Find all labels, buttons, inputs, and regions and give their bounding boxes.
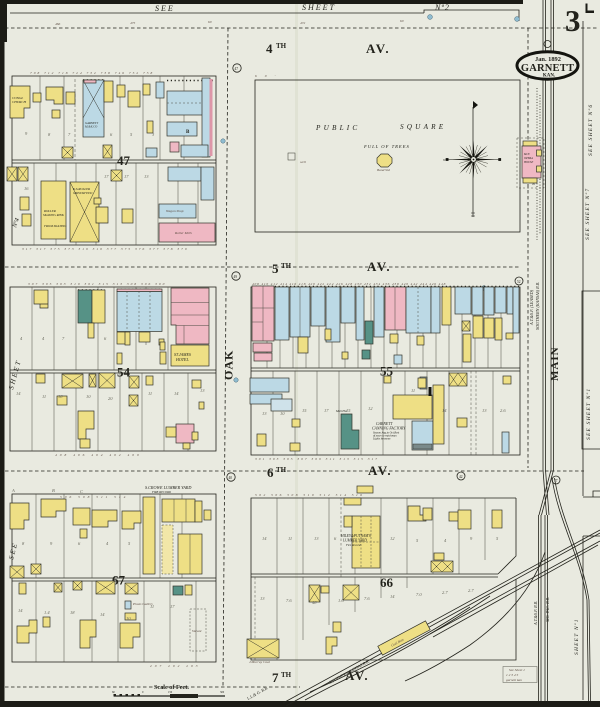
- svg-text:17: 17: [170, 604, 175, 609]
- svg-text:CHURCH: CHURCH: [12, 100, 26, 104]
- svg-text:Fire Record: Fire Record: [345, 543, 361, 547]
- svg-text:11: 11: [150, 604, 154, 609]
- svg-text:A.T.&S.F. R.R.: A.T.&S.F. R.R.: [533, 601, 538, 626]
- svg-text:18: 18: [70, 610, 75, 615]
- svg-text:KAN.: KAN.: [543, 74, 556, 79]
- svg-text:OAK: OAK: [222, 350, 236, 380]
- svg-text:Scale of Feet.: Scale of Feet.: [154, 684, 189, 691]
- svg-text:408 406 404 402 40: 408 406 404 402 400: [55, 453, 142, 457]
- svg-text:47: 47: [117, 153, 131, 168]
- svg-text:502 506 508 510 512: 502 506 508 510 512 514 516: [255, 493, 365, 497]
- svg-text:150: 150: [168, 691, 173, 694]
- svg-text:Nº2: Nº2: [434, 3, 450, 12]
- svg-text:54: 54: [117, 365, 131, 380]
- svg-text:317 317 375 373 319 310: 317 317 375 373 319 310 377 375 376 377 …: [22, 247, 189, 251]
- svg-text:472: 472: [300, 21, 306, 25]
- svg-text:W: W: [443, 158, 446, 162]
- svg-text:Lights kerosene: Lights kerosene: [372, 438, 391, 441]
- svg-text:GARNETT: GARNETT: [521, 63, 574, 74]
- svg-text:11: 11: [288, 536, 292, 541]
- svg-text:2.6: 2.6: [500, 408, 506, 413]
- svg-text:13: 13: [262, 411, 267, 416]
- svg-text:CANNING FACTORY: CANNING FACTORY: [372, 427, 406, 431]
- svg-text:HOTEL: HOTEL: [175, 357, 189, 362]
- svg-text:301 303 305 307 309 311: 301 303 305 307 309 311 313 315 317: [255, 457, 379, 461]
- svg-text:1.4: 1.4: [44, 610, 50, 615]
- svg-text:42: 42: [459, 475, 463, 479]
- svg-text:10: 10: [86, 394, 91, 399]
- svg-text:1 2 3 4 5: 1 2 3 4 5: [506, 673, 519, 677]
- svg-text:GRIST&FEED: GRIST&FEED: [73, 191, 93, 195]
- svg-text:E: E: [499, 158, 501, 162]
- svg-text:6: 6: [267, 465, 276, 480]
- svg-text:7: 7: [272, 670, 281, 685]
- svg-text:40: 40: [229, 476, 233, 480]
- svg-text:PUBLIC: PUBLIC: [315, 124, 360, 132]
- svg-text:506 508 511 514: 506 508 511 514: [60, 495, 128, 499]
- svg-text:475: 475: [130, 21, 136, 25]
- svg-text:SHEET: SHEET: [302, 3, 336, 12]
- svg-text:SEE: SEE: [155, 4, 175, 13]
- svg-text:13: 13: [260, 596, 265, 601]
- svg-text:18: 18: [58, 394, 63, 399]
- svg-text:SKATING RINK: SKATING RINK: [43, 213, 65, 217]
- svg-text:Wagon Shop: Wagon Shop: [166, 209, 184, 213]
- svg-text:14: 14: [174, 391, 179, 396]
- svg-text:12: 12: [368, 406, 373, 411]
- svg-text:MO. PAC. R.R.: MO. PAC. R.R.: [545, 597, 550, 623]
- svg-text:14: 14: [18, 608, 23, 613]
- svg-text:4: 4: [266, 41, 275, 56]
- svg-text:TH: TH: [276, 466, 287, 474]
- svg-text:SHEET Nº1: SHEET Nº1: [574, 618, 580, 655]
- svg-text:FULL OF TREES: FULL OF TREES: [363, 144, 410, 149]
- svg-text:1.6: 1.6: [338, 598, 344, 603]
- svg-text:17: 17: [104, 174, 109, 179]
- svg-text:A.T.&S.F. (LEASED): A.T.&S.F. (LEASED): [529, 289, 534, 326]
- svg-text:307 305 303 310 301 31: 307 305 303 310 301 315 313 308 306 300: [28, 282, 166, 286]
- svg-text:2.7: 2.7: [468, 588, 474, 593]
- svg-text:SOUTHERN (KANSAS) R.R.: SOUTHERN (KANSAS) R.R.: [535, 282, 540, 330]
- svg-text:17: 17: [124, 174, 129, 179]
- svg-text:A: A: [11, 488, 15, 493]
- svg-text:60: 60: [400, 19, 404, 23]
- svg-text:TH: TH: [281, 262, 292, 270]
- svg-text:14: 14: [16, 391, 21, 396]
- svg-text:20: 20: [108, 396, 113, 401]
- svg-text:Jan. 1892: Jan. 1892: [535, 56, 561, 63]
- svg-text:OPERA: OPERA: [524, 157, 533, 160]
- svg-text:SQUARE: SQUARE: [400, 123, 446, 131]
- svg-text:See Sheet 1: See Sheet 1: [509, 668, 525, 672]
- svg-text:47: 47: [235, 67, 239, 71]
- svg-text:66: 66: [380, 575, 394, 590]
- svg-text:SEE SHEET Nº6: SEE SHEET Nº6: [588, 104, 594, 156]
- svg-text:52: 52: [517, 280, 521, 284]
- svg-text:garnett kan: garnett kan: [506, 678, 522, 682]
- svg-text:60': 60': [255, 74, 283, 78]
- svg-text:466: 466: [55, 22, 61, 26]
- svg-text:7.0: 7.0: [416, 592, 422, 597]
- svg-text:well: well: [300, 160, 306, 164]
- svg-text:7.6: 7.6: [286, 598, 292, 603]
- svg-text:SEE SHEET Nº1: SEE SHEET Nº1: [586, 388, 592, 440]
- svg-text:GARNETT: GARNETT: [376, 422, 393, 426]
- svg-text:708 712 718 724 732 738: 708 712 718 724 732 738 746 752 758: [30, 71, 154, 75]
- svg-text:13: 13: [314, 536, 319, 541]
- svg-text:207 202 203: 207 202 203: [150, 664, 201, 668]
- svg-text:10: 10: [126, 616, 131, 621]
- svg-text:2.7: 2.7: [442, 590, 448, 595]
- svg-text:AV.: AV.: [368, 463, 393, 478]
- svg-text:5: 5: [272, 261, 281, 276]
- svg-text:FIRE RECORD: FIRE RECORD: [151, 490, 172, 494]
- svg-text:13: 13: [200, 388, 205, 393]
- svg-text:Roller Mills: Roller Mills: [174, 231, 192, 235]
- svg-text:Vacant: Vacant: [192, 629, 203, 633]
- svg-text:11: 11: [148, 391, 152, 396]
- svg-text:HILEY&PUTNAM'S: HILEY&PUTNAM'S: [340, 534, 371, 538]
- svg-text:M.&E.CO: M.&E.CO: [84, 125, 98, 129]
- svg-text:TH: TH: [276, 42, 287, 50]
- svg-text:16: 16: [24, 186, 29, 191]
- svg-text:11: 11: [411, 388, 415, 393]
- svg-text:13: 13: [144, 174, 149, 179]
- svg-text:14: 14: [442, 408, 447, 413]
- svg-text:300: 300: [220, 691, 225, 694]
- svg-text:49: 49: [234, 275, 238, 279]
- svg-text:408 410 412 414 416 418 420 42: 408 410 412 414 416 418 420 422 424 426 …: [252, 282, 446, 286]
- svg-text:14: 14: [100, 612, 105, 617]
- svg-text:Band Std: Band Std: [377, 168, 390, 172]
- svg-text:14: 14: [390, 594, 395, 599]
- svg-text:TH: TH: [281, 671, 292, 679]
- svg-text:11: 11: [42, 394, 46, 399]
- svg-text:SEE SHEET Nº7: SEE SHEET Nº7: [585, 188, 591, 240]
- svg-text:60: 60: [208, 20, 212, 24]
- svg-text:15: 15: [346, 408, 351, 413]
- svg-text:7.6: 7.6: [364, 596, 370, 601]
- svg-text:LUMBER YARD: LUMBER YARD: [342, 539, 367, 543]
- svg-text:13: 13: [482, 408, 487, 413]
- svg-text:3: 3: [565, 3, 581, 38]
- svg-text:FROM SKATING: FROM SKATING: [43, 224, 67, 228]
- svg-text:B: B: [52, 488, 55, 493]
- svg-text:HOUSE: HOUSE: [523, 161, 533, 164]
- svg-text:15: 15: [302, 408, 307, 413]
- svg-text:10: 10: [280, 411, 285, 416]
- svg-text:17: 17: [324, 408, 329, 413]
- svg-text:14: 14: [262, 536, 267, 541]
- svg-text:AV.: AV.: [366, 41, 391, 56]
- svg-text:48: 48: [312, 600, 317, 605]
- svg-text:AV.: AV.: [367, 259, 392, 274]
- svg-text:J.Murray Coal: J.Murray Coal: [249, 660, 270, 664]
- svg-text:12: 12: [390, 536, 395, 541]
- svg-text:McN: McN: [523, 153, 530, 156]
